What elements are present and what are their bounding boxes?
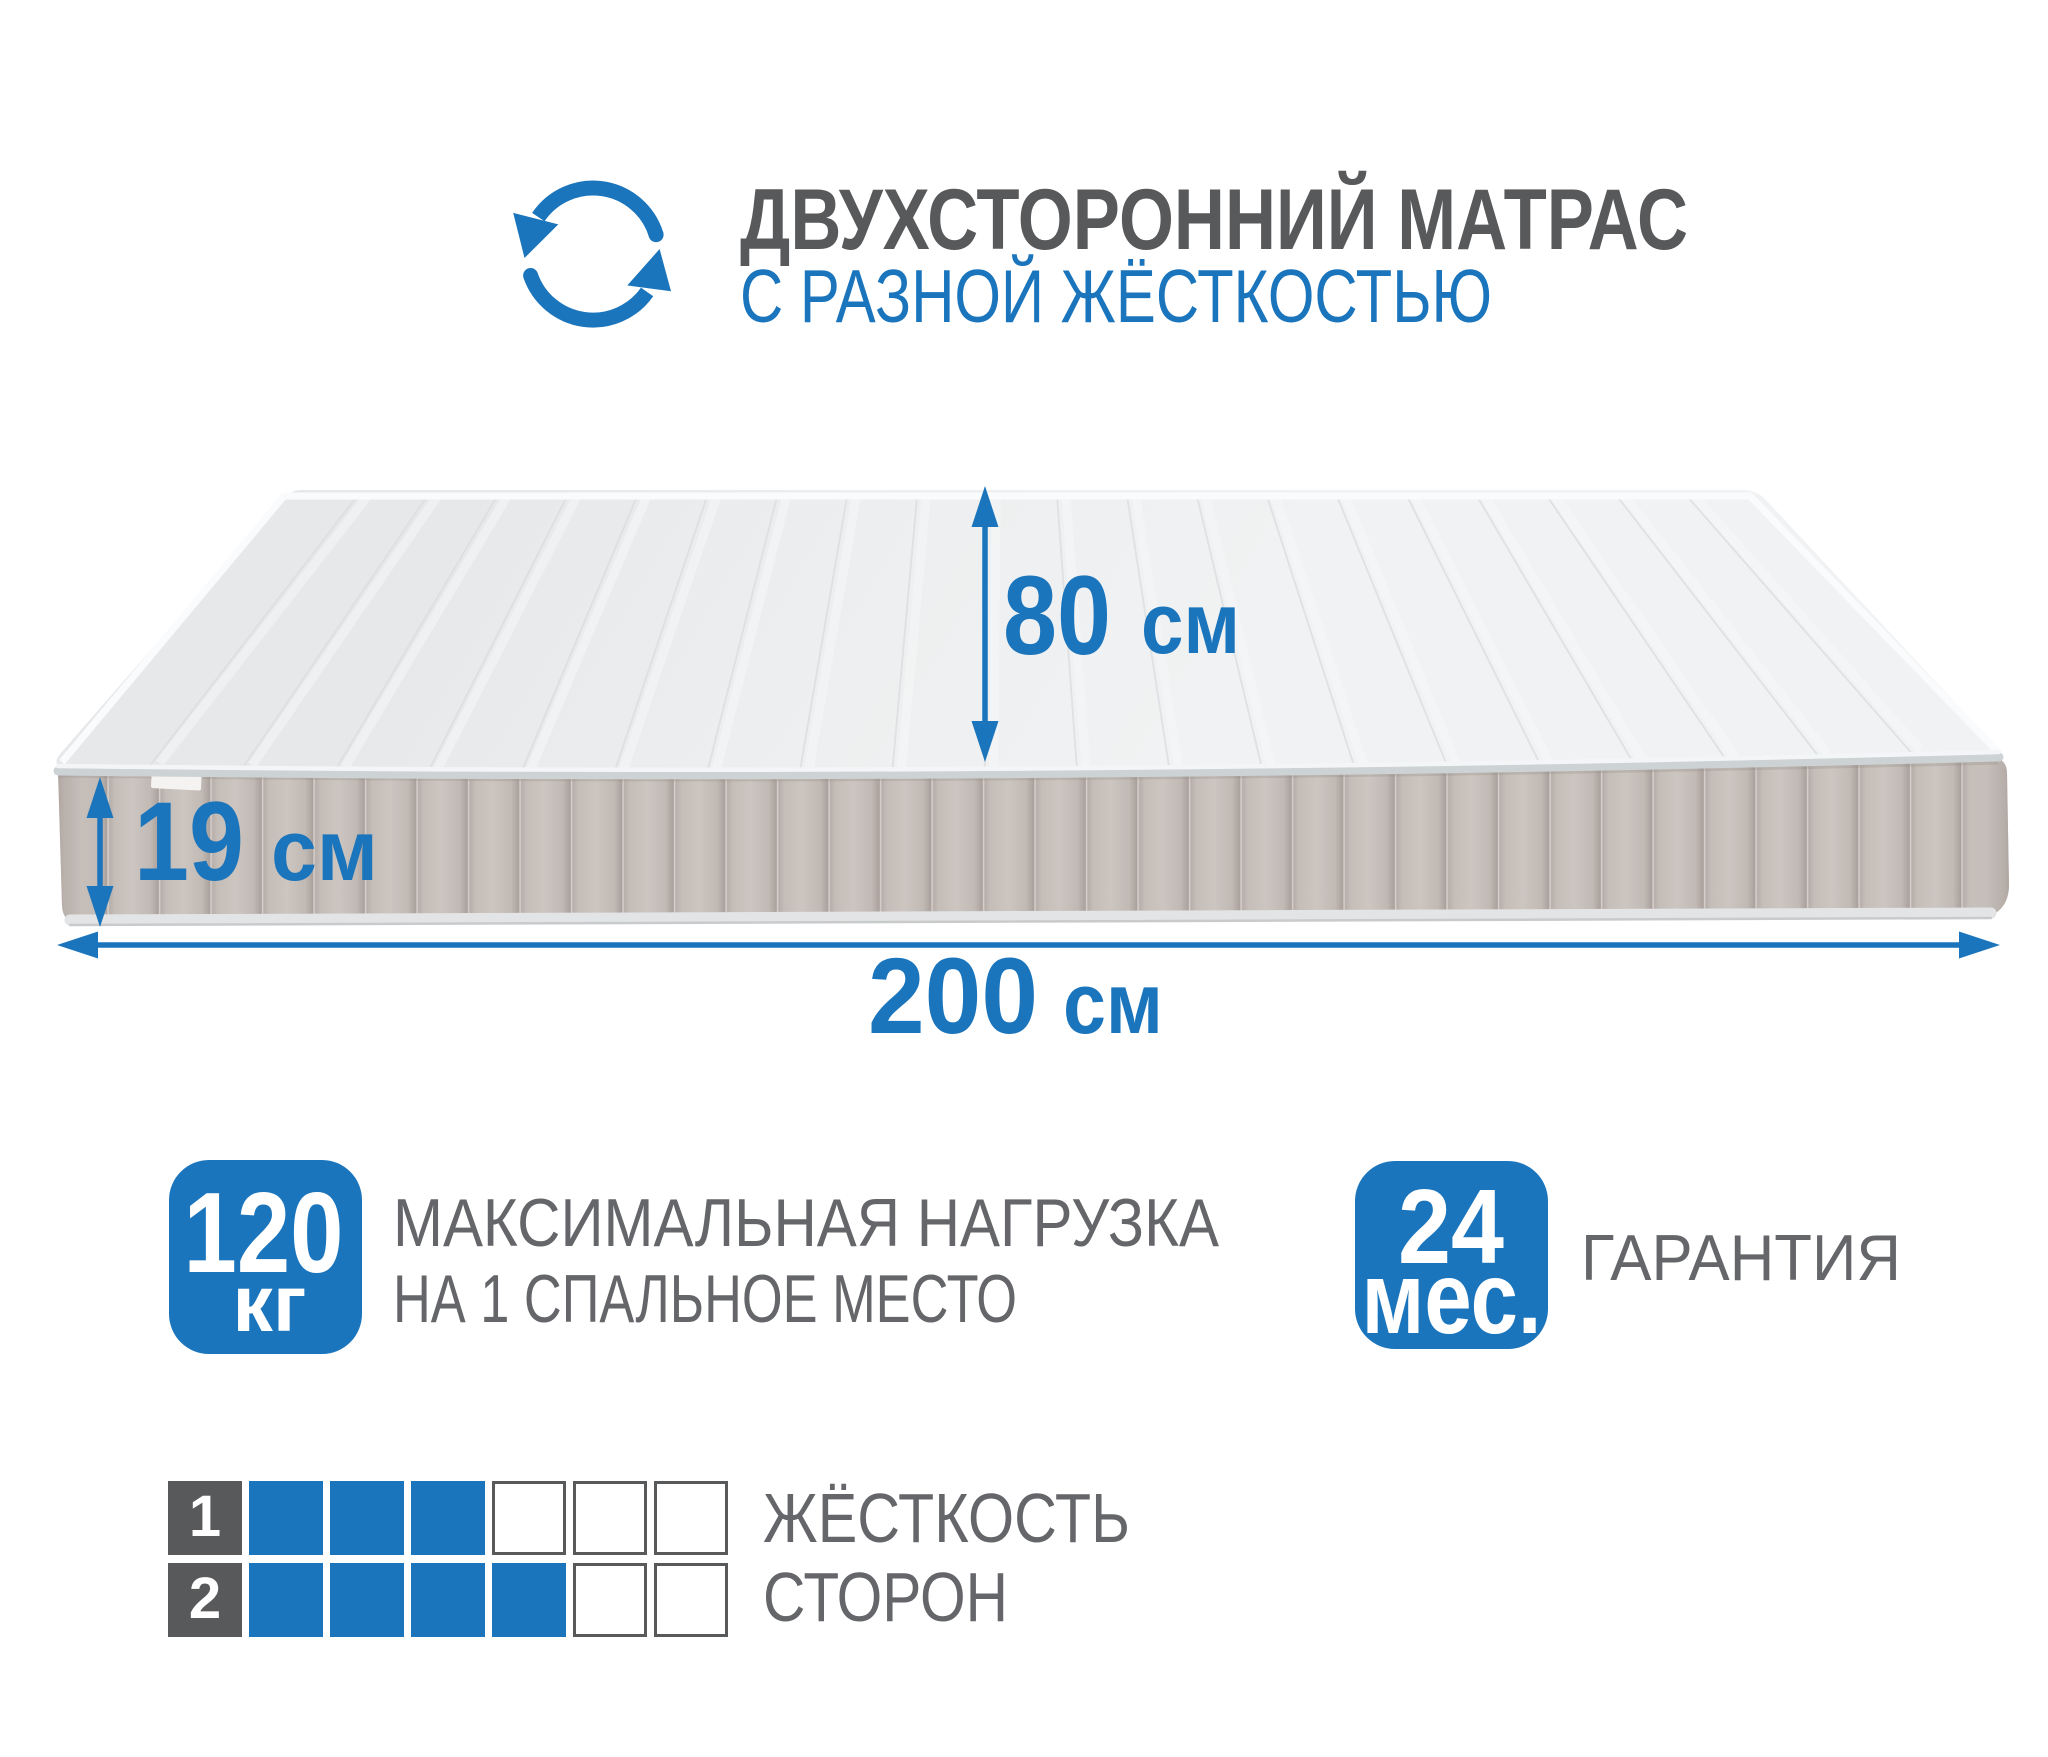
svg-text:НА 1 СПАЛЬНОЕ МЕСТО: НА 1 СПАЛЬНОЕ МЕСТО (393, 1261, 1017, 1337)
svg-text:см: см (1063, 956, 1163, 1052)
svg-text:см: см (271, 803, 378, 899)
svg-text:80: 80 (1003, 553, 1111, 678)
svg-text:200: 200 (868, 935, 1038, 1056)
svg-text:СТОРОН: СТОРОН (763, 1558, 1008, 1636)
svg-text:см: см (1141, 576, 1240, 672)
svg-text:ЖЁСТКОСТЬ: ЖЁСТКОСТЬ (763, 1479, 1130, 1557)
svg-text:19: 19 (134, 779, 244, 904)
svg-text:1: 1 (189, 1484, 221, 1549)
svg-text:С РАЗНОЙ ЖЁСТКОСТЬЮ: С РАЗНОЙ ЖЁСТКОСТЬЮ (740, 254, 1492, 338)
svg-text:мес.: мес. (1362, 1241, 1542, 1355)
svg-text:кг: кг (233, 1259, 307, 1348)
svg-text:МАКСИМАЛЬНАЯ НАГРУЗКА: МАКСИМАЛЬНАЯ НАГРУЗКА (393, 1185, 1220, 1261)
svg-text:2: 2 (189, 1566, 221, 1631)
svg-text:ГАРАНТИЯ: ГАРАНТИЯ (1581, 1221, 1901, 1294)
